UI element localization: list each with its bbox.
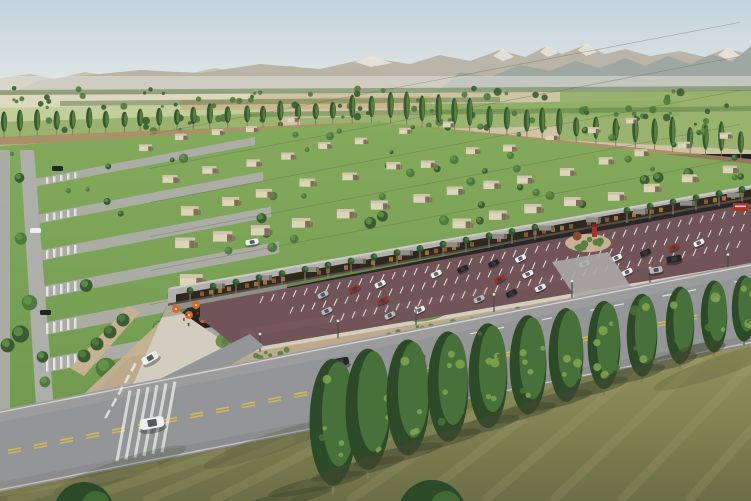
foliage-clump: [576, 373, 582, 379]
house-roof: [202, 166, 216, 168]
crosswalk-bar: [60, 284, 62, 294]
house-side: [189, 241, 195, 248]
poplar-highlight: [615, 120, 618, 140]
house-roof: [608, 192, 624, 195]
light-pole-head: [493, 293, 496, 296]
yard-tree-highlight: [305, 148, 308, 151]
house-roof: [626, 118, 636, 120]
distant-tree: [512, 110, 518, 116]
distant-tree: [258, 91, 262, 95]
palm-crown-highlight: [672, 199, 676, 203]
yard-tree-highlight: [180, 154, 185, 159]
distant-tree: [583, 106, 588, 111]
distant-tree: [76, 86, 82, 92]
distant-tree: [101, 105, 106, 110]
entry-shrub: [587, 237, 592, 242]
foliage-clump: [410, 397, 415, 402]
yard-tree-highlight: [225, 248, 229, 252]
foliage-clump: [443, 389, 448, 394]
foliage-clump: [579, 338, 583, 342]
yard-tree-highlight: [16, 234, 23, 241]
yard-tree-highlight: [625, 156, 629, 160]
poplar-highlight: [105, 112, 108, 126]
palm-crown-highlight: [189, 288, 193, 292]
poplar-highlight: [280, 102, 283, 119]
house-roof: [281, 153, 294, 155]
house-roof: [342, 173, 357, 176]
distant-tree: [188, 121, 192, 125]
storefront-window: [713, 198, 717, 203]
foliage-clump: [319, 434, 326, 441]
house-side: [596, 129, 599, 133]
storefront-window: [200, 292, 204, 297]
poplar-highlight: [56, 112, 59, 128]
yard-tree-highlight: [302, 194, 305, 197]
poplar-highlight: [654, 120, 657, 143]
poplar-highlight: [454, 99, 457, 123]
crosswalk-bar: [53, 249, 55, 257]
house-side: [620, 195, 625, 201]
yard-tree-highlight: [14, 327, 23, 336]
distant-tree: [253, 92, 256, 95]
house-side: [213, 168, 217, 173]
yard-tree-highlight: [411, 125, 413, 127]
house-roof: [222, 197, 239, 200]
foliage-clump: [678, 293, 684, 299]
yard-tree-highlight: [86, 188, 88, 190]
distant-tree: [462, 92, 468, 98]
storefront-window: [227, 287, 231, 292]
poplar-highlight: [263, 107, 266, 120]
red-leaf-tree: [573, 232, 582, 241]
distant-tree: [411, 106, 417, 112]
house-side: [458, 189, 462, 195]
foliage-clump: [417, 409, 422, 414]
house-side: [291, 155, 295, 160]
crosswalk-bar: [60, 211, 62, 218]
poplar-highlight: [690, 129, 693, 147]
umbrella-pole: [175, 308, 177, 310]
foliage-clump: [562, 372, 567, 377]
poplar-highlight: [559, 110, 562, 134]
yard-tree-highlight: [732, 155, 735, 158]
house-roof: [256, 189, 272, 192]
rooftop-unit-edge: [692, 201, 695, 206]
house-side: [256, 162, 260, 167]
aerial-site-rendering: [0, 0, 751, 501]
foliage-clump: [527, 369, 533, 375]
crosswalk-bar: [74, 209, 76, 216]
house-roof: [588, 127, 599, 129]
foliage-clump: [522, 359, 528, 365]
palm-crown-highlight: [488, 233, 492, 237]
house-side: [570, 171, 574, 176]
house-roof: [337, 209, 355, 212]
yard-tree-highlight: [378, 212, 384, 218]
palm-crown-highlight: [741, 187, 745, 191]
palm-crown-highlight: [235, 279, 239, 283]
foliage-clump: [705, 324, 713, 332]
house-side: [353, 175, 357, 181]
storefront-window: [398, 255, 402, 260]
storefront-window: [524, 232, 528, 237]
storefront-window: [389, 257, 393, 262]
house-side: [194, 209, 199, 216]
distant-tree: [162, 92, 165, 95]
house-side: [383, 203, 388, 209]
foliage-clump: [741, 286, 747, 292]
house-roof: [139, 144, 152, 146]
house-roof: [247, 159, 261, 161]
monument-sign-cap: [592, 224, 597, 227]
crosswalk-bar: [67, 174, 69, 180]
house-roof: [292, 218, 310, 221]
pedestrian: [186, 313, 188, 316]
distant-tree: [705, 109, 710, 114]
yard-tree-highlight: [650, 167, 653, 170]
yard-tree-highlight: [106, 164, 109, 167]
foliage-clump: [560, 336, 567, 343]
yard-tree-highlight: [483, 169, 486, 172]
palm-crown-highlight: [695, 195, 699, 199]
house-roof: [413, 194, 429, 197]
crosswalk-bar: [60, 175, 62, 181]
house-side: [609, 159, 613, 164]
house-roof: [682, 174, 697, 177]
distant-tree: [338, 104, 342, 108]
house-roof: [175, 238, 195, 241]
house-side: [693, 177, 697, 183]
house-roof: [723, 166, 737, 168]
yard-tree-highlight: [104, 199, 108, 203]
foliage-clump: [322, 426, 326, 430]
palm-crown-highlight: [649, 204, 653, 208]
house-roof: [524, 204, 541, 207]
yard-tree-highlight: [440, 216, 445, 221]
house-roof: [635, 149, 648, 151]
yard-tree-highlight: [732, 175, 735, 178]
crosswalk-bar: [46, 323, 48, 334]
poplar-highlight: [438, 96, 441, 122]
house-roof: [599, 157, 613, 159]
rooftop-unit-edge: [363, 259, 366, 264]
distant-tree: [505, 92, 509, 96]
distant-tree: [230, 97, 236, 103]
light-pole-head: [415, 306, 418, 309]
poplar-highlight: [176, 111, 179, 124]
storefront-window: [470, 242, 474, 247]
foliage-clump: [400, 357, 409, 366]
foliage-clump: [598, 326, 607, 335]
storefront-window: [569, 224, 573, 229]
distant-tree: [724, 103, 729, 108]
yard-tree-highlight: [478, 124, 481, 127]
storefront-window: [722, 196, 726, 201]
house-side: [220, 131, 223, 135]
distant-tree: [174, 103, 178, 107]
rooftop-unit-edge: [316, 267, 319, 272]
crosswalk-bar: [53, 213, 55, 220]
foliage-clump: [714, 297, 719, 302]
storefront-window: [272, 279, 276, 284]
distant-tree: [677, 88, 685, 96]
crosswalk-bar: [46, 178, 48, 184]
distant-tree: [669, 112, 672, 115]
house-roof: [399, 128, 410, 130]
yard-tree-highlight: [170, 158, 173, 161]
house-roof: [644, 184, 660, 187]
house-side: [227, 234, 232, 241]
house-side: [576, 200, 581, 206]
parked-car: [52, 166, 63, 171]
storefront-window: [614, 216, 618, 221]
distant-tree: [643, 114, 649, 120]
foliage-clump: [448, 351, 455, 358]
house-side: [644, 151, 648, 156]
yard-tree-highlight: [118, 211, 121, 214]
pedestrian: [183, 318, 185, 321]
house-side: [183, 136, 186, 140]
house-side: [267, 192, 272, 198]
storefront-window: [263, 280, 267, 285]
palm-crown-highlight: [373, 254, 377, 258]
poplar-highlight: [37, 111, 40, 129]
distant-tree: [694, 123, 697, 126]
crosswalk-bar: [74, 281, 76, 291]
crosswalk-bar: [60, 320, 62, 331]
foliage-clump: [677, 338, 685, 346]
palm-crown-highlight: [465, 237, 469, 241]
yard-tree-highlight: [337, 129, 340, 132]
storefront-window: [344, 265, 348, 270]
yard-tree-highlight: [533, 189, 537, 193]
median-tree-highlight: [105, 326, 112, 333]
house-side: [537, 207, 542, 213]
median-tree-highlight: [92, 338, 99, 345]
apron-shrub: [268, 353, 272, 357]
foliage-clump: [670, 301, 678, 309]
yard-tree-highlight: [293, 132, 296, 135]
entry-shrub: [581, 240, 589, 248]
yard-tree-highlight: [38, 352, 44, 358]
foliage-clump: [633, 346, 638, 351]
house-side: [350, 212, 355, 219]
storefront-window: [605, 218, 609, 223]
foliage-clump: [372, 377, 379, 384]
house-roof: [300, 179, 315, 182]
poplar-highlight: [469, 99, 472, 124]
poplar-highlight: [489, 107, 492, 126]
light-pole-head: [727, 253, 730, 256]
poplar-highlight: [526, 111, 529, 130]
yard-tree-highlight: [10, 152, 12, 154]
foliage-clump: [573, 359, 582, 368]
yard-tree-highlight: [582, 127, 586, 131]
house-roof: [503, 145, 516, 147]
rooftop-unit-edge: [504, 234, 507, 239]
storefront-window: [434, 249, 438, 254]
house-roof: [447, 187, 463, 190]
house-side: [502, 213, 507, 220]
distant-tree: [358, 106, 363, 111]
apron-shrub: [253, 353, 259, 359]
storefront-window: [659, 208, 663, 213]
foliage-clump: [339, 453, 344, 458]
foliage-clump: [568, 324, 572, 328]
poplar-highlight: [740, 133, 743, 152]
house-roof: [466, 147, 479, 149]
foliage-clump: [413, 428, 419, 434]
house-roof: [560, 168, 574, 170]
crosswalk-bar: [67, 319, 69, 330]
umbrella-pole: [195, 304, 197, 306]
rooftop-unit-edge: [551, 226, 554, 231]
yard-tree-highlight: [81, 280, 88, 287]
poplar-highlight: [159, 109, 162, 124]
distant-tree: [663, 114, 671, 122]
storefront-window: [245, 283, 249, 288]
crosswalk-bar: [53, 176, 55, 182]
yard-tree-highlight: [390, 150, 392, 152]
palm-crown-highlight: [511, 229, 515, 233]
pedestrian: [197, 312, 199, 315]
house-roof: [453, 219, 471, 222]
crosswalk-bar: [46, 360, 48, 372]
house-side: [554, 136, 557, 140]
distant-tree: [354, 91, 360, 97]
house-side: [295, 118, 298, 122]
rooftop-unit-edge: [269, 275, 272, 280]
rooftop-unit-edge: [222, 284, 225, 289]
foliage-clump: [478, 331, 482, 335]
distant-tree: [46, 106, 49, 109]
house-roof: [355, 138, 367, 140]
distant-tree: [148, 87, 152, 91]
house-side: [431, 163, 435, 168]
crosswalk-bar: [74, 172, 76, 178]
house-roof: [678, 142, 690, 144]
distant-tree: [703, 118, 709, 124]
foliage-clump: [540, 346, 545, 351]
house-side: [733, 168, 737, 173]
foliage-clump: [438, 418, 446, 426]
storefront-window: [650, 209, 654, 214]
palm-crown-highlight: [442, 241, 446, 245]
distant-tree: [671, 90, 675, 94]
palm-crown-highlight: [304, 267, 308, 271]
foliage-clump: [520, 349, 527, 356]
crosswalk-bar: [74, 245, 76, 253]
yard-tree-highlight: [66, 189, 69, 192]
storefront-window: [443, 247, 447, 252]
house-side: [310, 181, 314, 187]
house-side: [327, 144, 330, 149]
poplar-highlight: [371, 97, 374, 115]
palm-crown-highlight: [419, 246, 423, 250]
foliage-clump: [526, 393, 531, 398]
house-roof: [251, 225, 270, 228]
yard-tree-highlight: [738, 174, 742, 178]
yard-tree-highlight: [477, 218, 481, 222]
house-roof: [386, 162, 400, 164]
foreground-tree-mid: [357, 351, 389, 451]
foliage-clump: [630, 305, 640, 315]
house-side: [425, 197, 430, 203]
foliage-clump: [359, 371, 368, 380]
crosswalk-bar: [60, 357, 62, 369]
distant-tree: [354, 113, 361, 120]
monument-text-line: [735, 206, 746, 208]
yard-tree-highlight: [478, 202, 482, 206]
foliage-clump: [722, 322, 727, 327]
yard-tree-highlight: [407, 169, 412, 174]
house-roof: [163, 175, 178, 178]
apron-shrub: [284, 347, 290, 353]
house-side: [234, 200, 239, 206]
distant-tree: [62, 127, 68, 133]
crosswalk-bar: [60, 248, 62, 256]
entry-shrub: [596, 238, 604, 246]
light-pole-head: [571, 280, 574, 283]
yard-tree-highlight: [684, 169, 690, 175]
foliage-clump: [593, 339, 600, 346]
yard-tree-highlight: [672, 143, 675, 146]
rooftop-unit-edge: [598, 217, 601, 222]
house-side: [512, 147, 516, 152]
storefront-window: [209, 290, 213, 295]
poplar-highlight: [140, 110, 143, 125]
distant-tree: [143, 91, 146, 94]
storefront-window: [218, 288, 222, 293]
distant-tree: [471, 86, 477, 92]
poplar-highlight: [247, 107, 250, 121]
foliage-clump: [413, 385, 419, 391]
house-side: [407, 130, 410, 134]
house-roof: [175, 134, 187, 136]
rooftop-unit-edge: [457, 242, 460, 247]
storefront-window: [425, 251, 429, 256]
house-roof: [720, 133, 732, 135]
foliage-clump: [449, 339, 458, 348]
house-side: [254, 128, 257, 132]
foliage-clump: [612, 320, 618, 326]
yard-tree-highlight: [451, 156, 456, 161]
yard-tree-highlight: [609, 135, 613, 139]
yard-tree-highlight: [508, 153, 512, 157]
yard-tree-highlight: [41, 377, 47, 383]
house-roof: [318, 142, 330, 144]
distant-tree: [12, 86, 17, 91]
foliage-clump: [497, 354, 501, 358]
umbrella-pole: [188, 314, 190, 316]
poplar-highlight: [193, 108, 196, 123]
storefront-window: [560, 226, 564, 231]
rooftop-unit-edge: [410, 250, 413, 255]
median-tree-highlight: [79, 350, 86, 357]
poplar-highlight: [352, 96, 355, 116]
yard-tree-highlight: [291, 235, 296, 240]
distant-tree: [632, 112, 637, 117]
house-side: [148, 146, 152, 151]
distant-tree: [196, 96, 201, 101]
poplar-highlight: [672, 118, 675, 145]
distant-tree: [143, 124, 149, 130]
parked-car: [40, 310, 51, 315]
poplar-highlight: [315, 105, 318, 118]
palm-crown-highlight: [396, 250, 400, 254]
palm-crown-highlight: [327, 262, 331, 266]
yard-tree-highlight: [23, 296, 31, 304]
